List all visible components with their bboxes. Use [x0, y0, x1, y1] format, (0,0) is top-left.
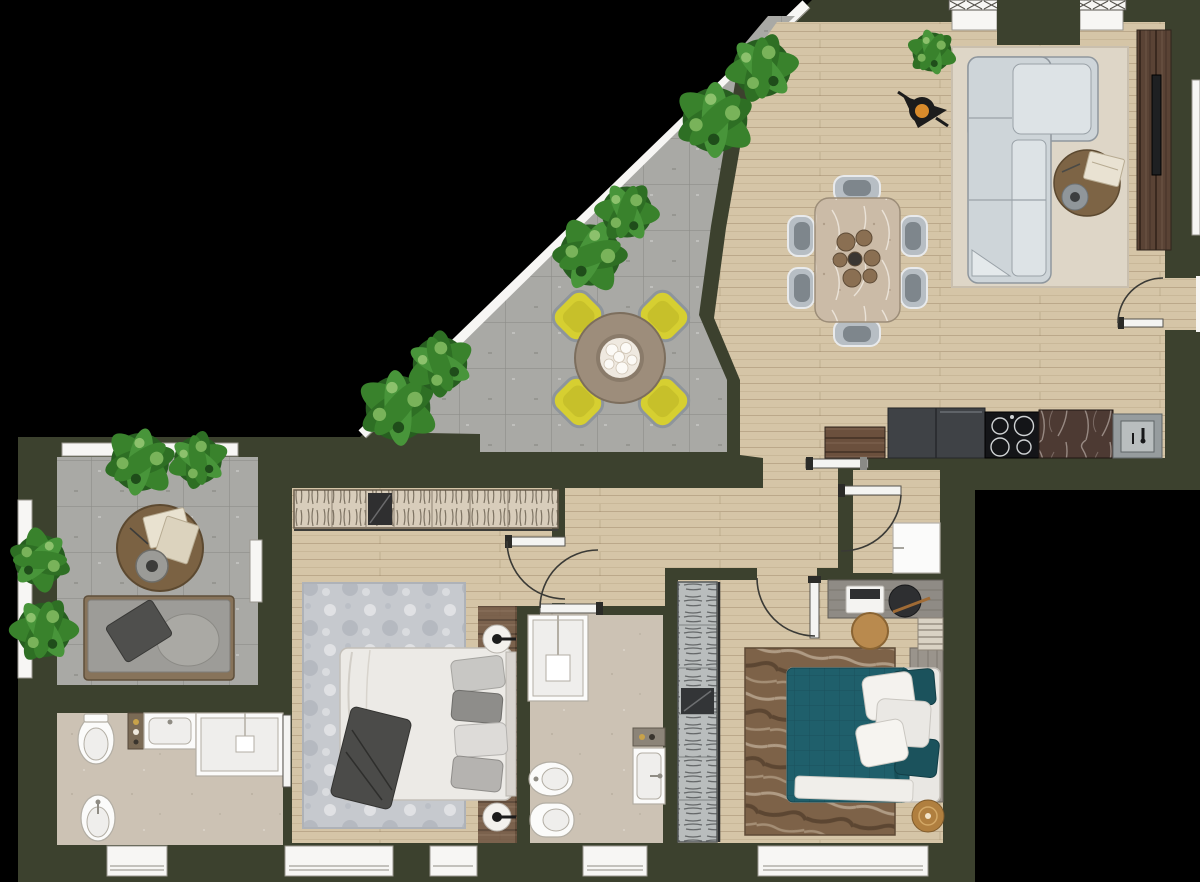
bathroom2-bidet [529, 762, 573, 796]
bedroom2-bookshelf [918, 618, 943, 650]
bathroom2-toilet [530, 803, 574, 837]
bedroom2-stool [852, 613, 888, 649]
entry-door-gap [1165, 278, 1198, 330]
master-wardrobe [294, 490, 558, 530]
bathroom1-bidet [81, 795, 115, 841]
master-window-right [430, 846, 477, 876]
bathroom2-window [583, 846, 647, 876]
loggia-window-right [250, 540, 262, 602]
bathroom2-shower [528, 615, 588, 701]
bathroom2-shelf [633, 728, 665, 746]
entry-outer-sill [1196, 276, 1200, 332]
bedroom2-bed [787, 668, 940, 802]
wall-pier [997, 0, 1080, 45]
master-window-left [285, 846, 393, 876]
bedroom2-wardrobe [678, 582, 719, 842]
loggia-bench [84, 596, 234, 680]
bedroom2-disc [912, 800, 944, 832]
master-door-gap [552, 545, 565, 603]
bathroom1-shelf [128, 713, 144, 749]
bathroom1-shower [196, 713, 283, 776]
bathroom1-window [107, 846, 167, 876]
bedroom2-desk [828, 580, 943, 618]
bathroom1-door [283, 715, 291, 787]
master-bed [330, 648, 516, 810]
kitchen-counter [1039, 410, 1113, 458]
floor-plan [0, 0, 1200, 882]
bedroom2-window [758, 846, 928, 876]
tv-screen [1152, 75, 1161, 175]
kitchen-sideboard [825, 427, 885, 458]
kitchen-door [806, 457, 868, 470]
kitchen-sink [1113, 414, 1162, 458]
bathroom2-sink [633, 748, 665, 804]
living-room-window-right [1192, 80, 1200, 235]
loggia-table [117, 505, 203, 591]
terrace-bouquet [600, 338, 640, 378]
bathroom1-basin [144, 713, 196, 749]
floor-plan-canvas [0, 0, 1200, 882]
